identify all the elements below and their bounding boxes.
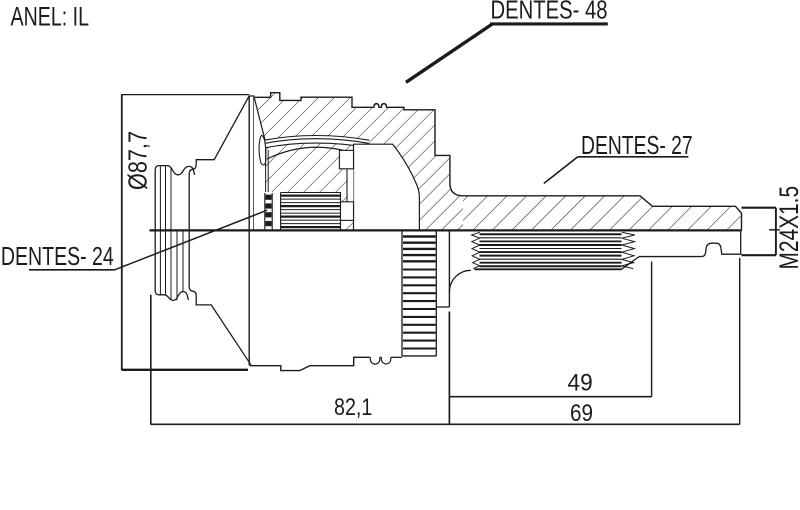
svg-text:82,1: 82,1 [334,394,372,421]
svg-text:ANEL: IL: ANEL: IL [11,2,90,32]
svg-text:49: 49 [568,370,593,397]
svg-text:DENTES- 24: DENTES- 24 [1,243,114,271]
svg-text:Ø87,7: Ø87,7 [122,131,152,190]
svg-text:DENTES- 27: DENTES- 27 [581,130,693,160]
svg-text:DENTES- 48: DENTES- 48 [491,0,608,25]
svg-text:M24X1.5: M24X1.5 [774,186,800,270]
svg-text:69: 69 [570,400,593,427]
